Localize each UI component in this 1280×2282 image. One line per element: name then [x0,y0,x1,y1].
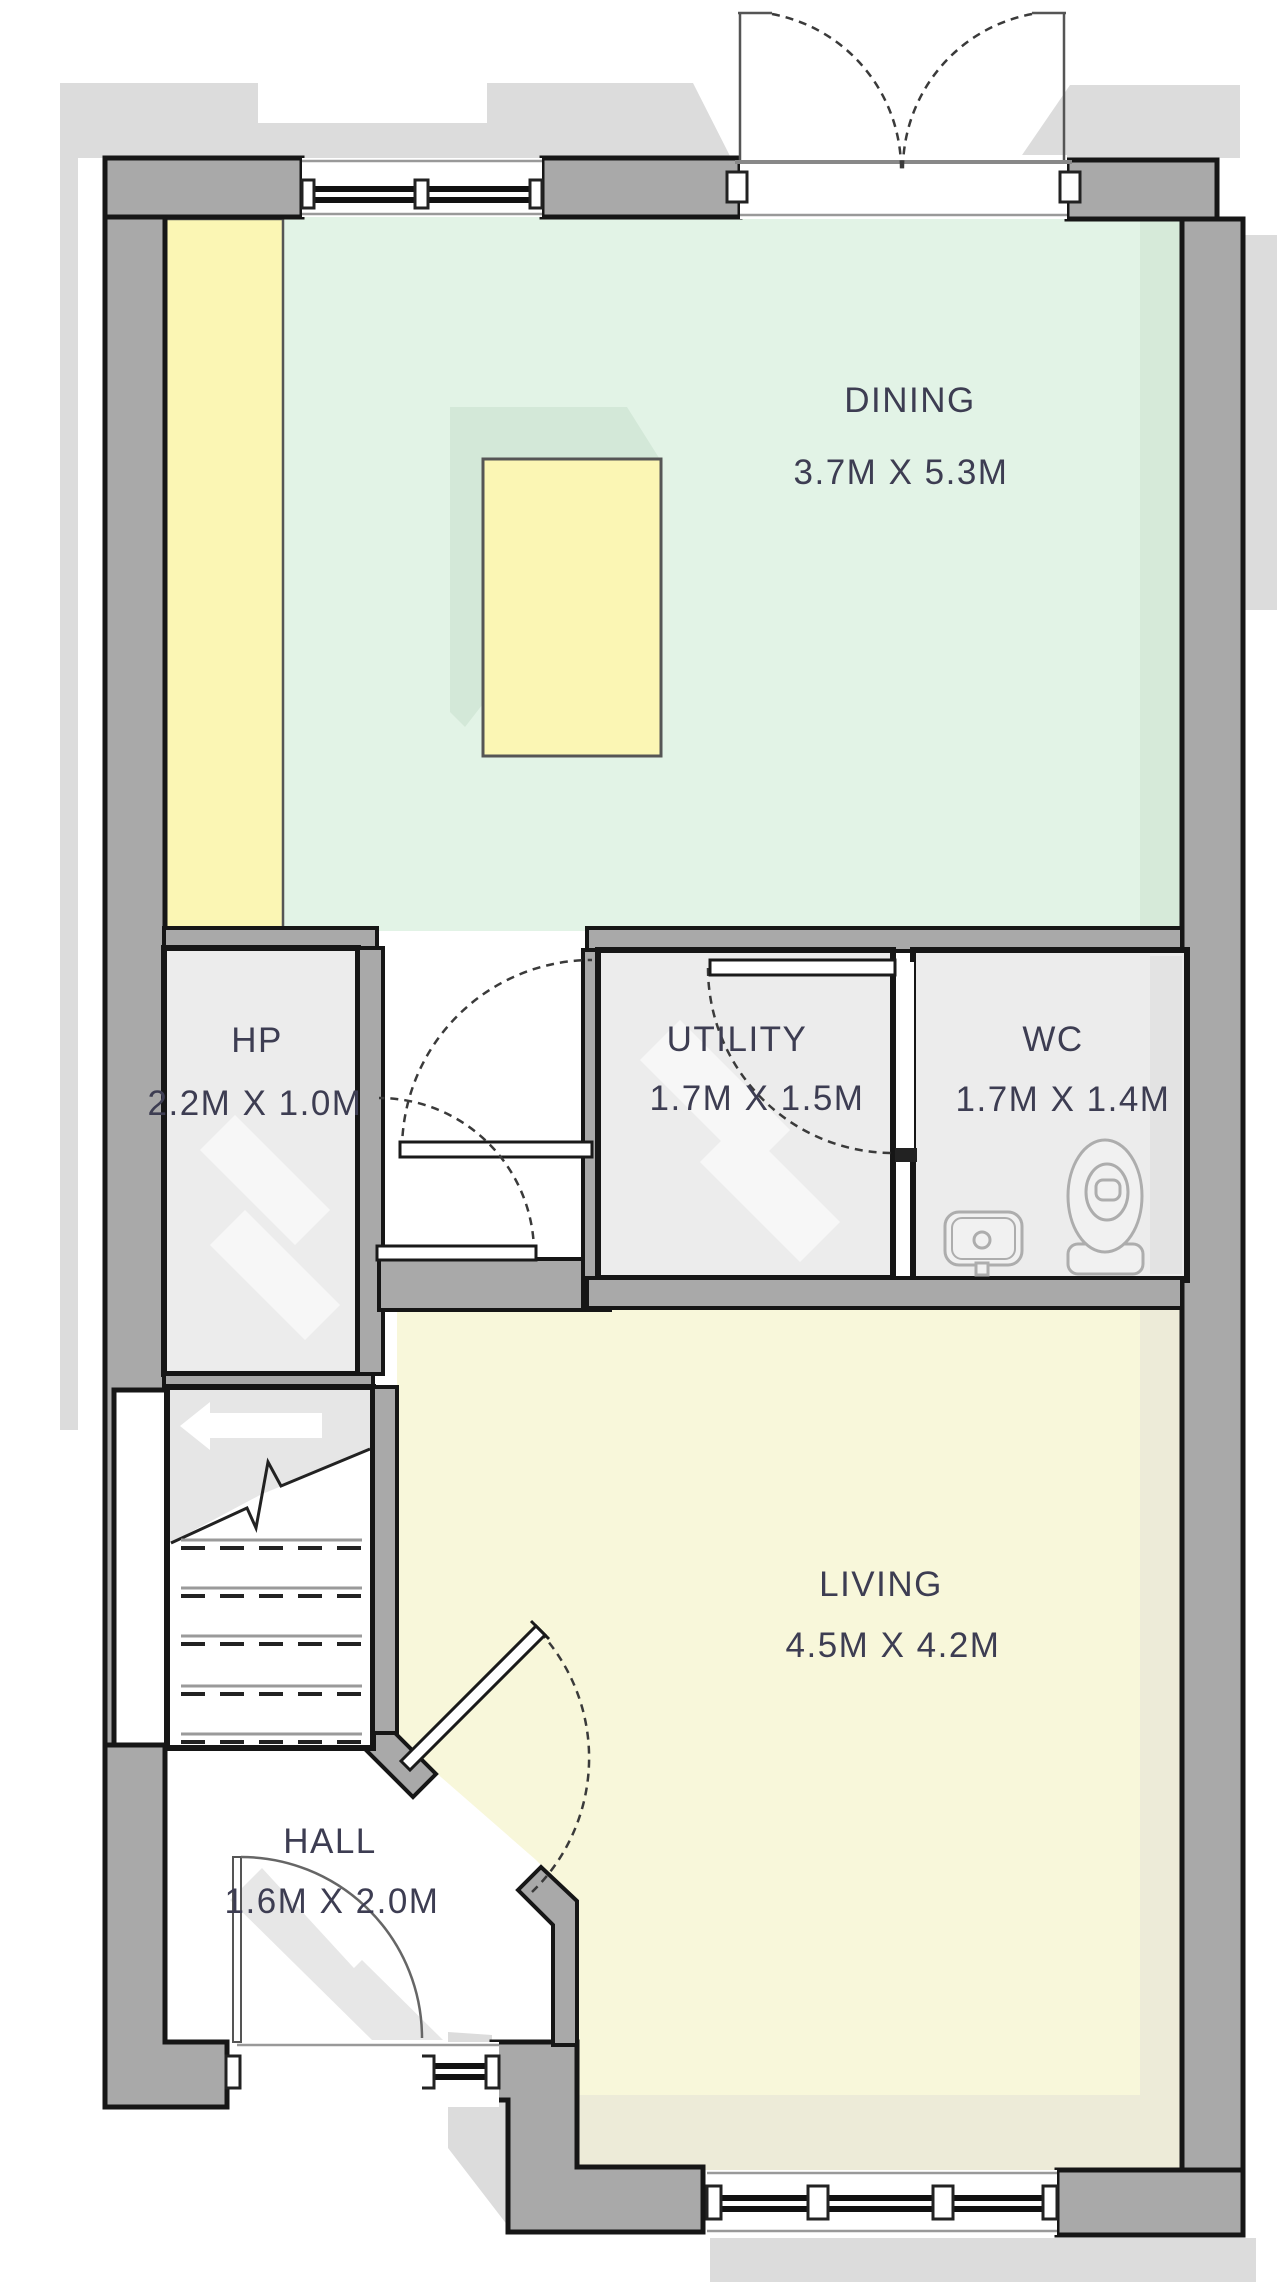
utility-label: UTILITY [667,1020,808,1059]
dining-dims: 3.7M X 5.3M [794,453,1009,492]
utility-wc-bottom-band [587,1278,1182,1308]
dining-label: DINING [844,381,976,420]
left-wall-upper [105,158,165,1745]
door-swing-icon-b [379,1098,534,1253]
window-icon-dining-top [302,158,542,217]
utility-wc-gap-tick [895,1148,917,1162]
shadow-bottom-band [710,2238,1256,2282]
wc-label: WC [1022,1020,1083,1059]
door-leaf-utility [710,960,895,975]
hall-label: HALL [283,1822,377,1861]
stairs-right-wall [373,1387,397,1733]
corridor-bottom-wall [379,1259,610,1310]
dining-floor-shade-right [1140,219,1182,931]
door-swing-icon-a [402,960,592,1150]
window-icon-hall-bottom [420,2042,499,2107]
hp-dims: 2.2M X 1.0M [148,1084,363,1123]
window-icon-living-bottom [707,2170,1057,2235]
dining-table [483,459,661,756]
living-label: LIVING [819,1565,943,1604]
hall-dims: 1.6M X 2.0M [225,1882,440,1921]
hp-label: HP [231,1021,283,1060]
living-floor-shade-right [1140,1308,1182,2170]
living-floor-shade-bottom [577,2095,1182,2170]
toilet-icon [1068,1140,1143,1274]
kitchen-counter-strip [164,219,283,928]
right-wall [1182,219,1243,2235]
top-wall-left [105,158,302,217]
shadow-top-right [1020,85,1240,158]
shadow-right-band [1243,235,1277,610]
door-leaf-b [377,1246,536,1260]
stairs [167,1387,397,1748]
hall-angled-wall-lower [518,1867,577,2045]
living-dims: 4.5M X 4.2M [786,1626,1001,1665]
corridor-living-door [377,1098,536,1260]
top-wall-middle [542,158,740,217]
basin-icon [945,1212,1022,1275]
floor-plan-canvas: DINING 3.7M X 5.3M HP 2.2M X 1.0M UTILIT… [0,0,1280,2282]
floor-plan: DINING 3.7M X 5.3M HP 2.2M X 1.0M UTILIT… [0,0,1280,2282]
utility-dims: 1.7M X 1.5M [650,1079,865,1118]
utility-wc-gap [897,962,914,1148]
left-wall-lower [105,1745,227,2107]
dining-floor [165,217,1182,931]
corridor-dining-door [400,960,592,1157]
french-doors-icon [727,12,1080,219]
top-wall-right [1067,160,1217,219]
living-bottom-right-wall [1057,2170,1243,2235]
wc-dims: 1.7M X 1.4M [956,1080,1171,1119]
